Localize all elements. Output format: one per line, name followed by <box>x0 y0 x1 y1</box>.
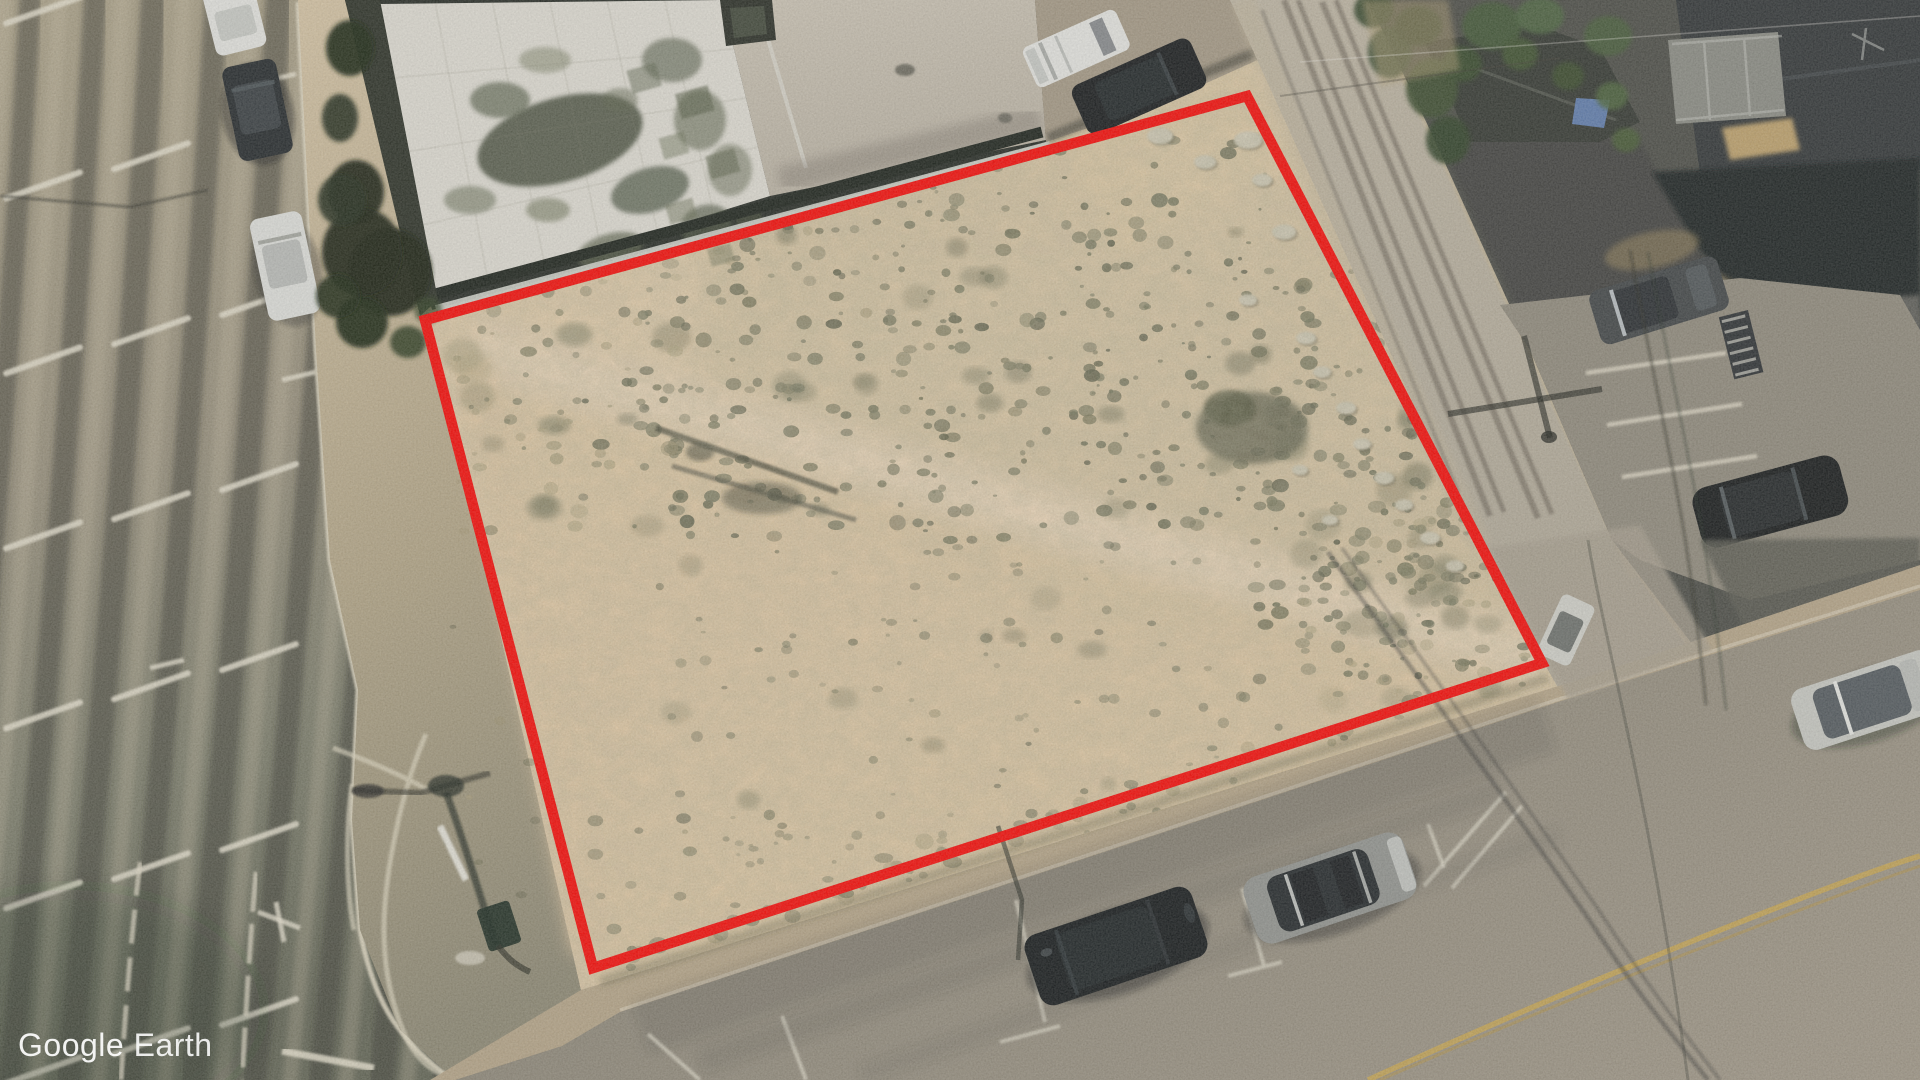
svg-text:Google Earth: Google Earth <box>18 1027 213 1063</box>
